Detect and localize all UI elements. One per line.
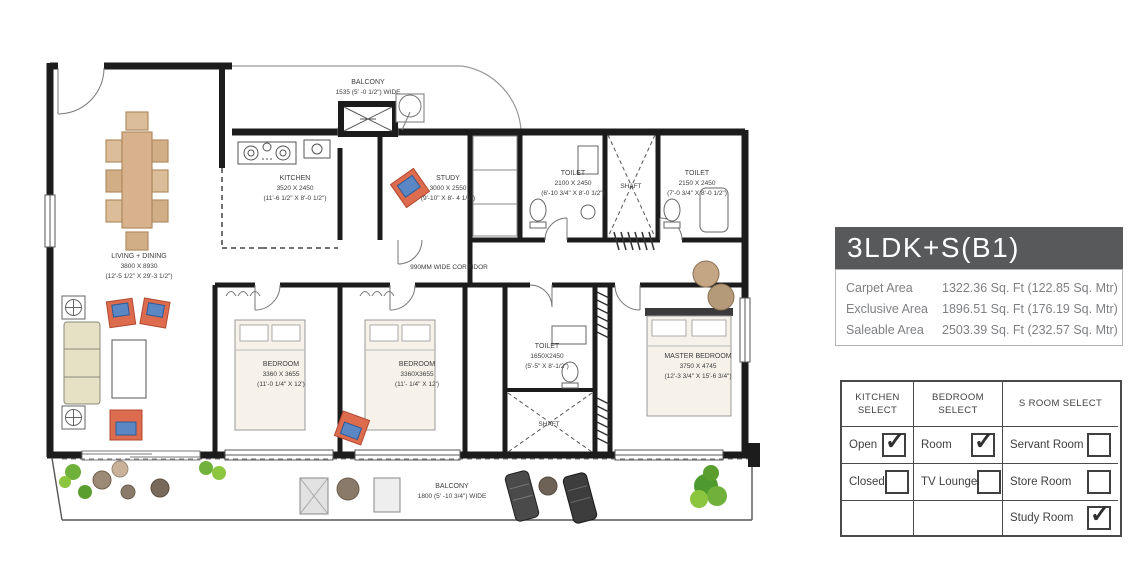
kitchen-name: KITCHEN (280, 175, 311, 182)
duct-hatching (597, 232, 654, 444)
top-balcony-box (341, 94, 424, 134)
dining-table (106, 112, 168, 250)
bedroom1-name: BEDROOM (263, 361, 299, 368)
toilet3-imperial: (5'-5" X 8'-1/2") (525, 363, 569, 370)
bedroom1-dims: 3360 X 3655 (263, 371, 300, 378)
wall-stub (748, 443, 760, 467)
toilet2-dims: 2150 X 2450 (679, 180, 716, 187)
kitchen-closed-cell: Closed (842, 464, 914, 501)
living-name: LIVING + DINING (111, 253, 166, 260)
exclusive-area-value: 1896.51 Sq. Ft (176.19 Sq. Mtr) (942, 302, 1118, 316)
master-dims: 3750 X 4745 (680, 363, 717, 370)
carpet-area-label: Carpet Area (846, 278, 942, 299)
bedroom-tvlounge-label: TV Lounge (921, 476, 977, 488)
bedroom-room-checkbox[interactable] (971, 433, 995, 457)
sroom-store-checkbox[interactable] (1087, 470, 1111, 494)
sroom-select-header: S ROOM SELECT (1003, 382, 1118, 427)
corridor-label: 990MM WIDE CORRIDOR (410, 264, 488, 271)
kitchen-closed-checkbox[interactable] (885, 470, 909, 494)
sroom-store-label: Store Room (1010, 476, 1071, 488)
shaft-mid-label: SHAFT (538, 421, 559, 428)
shaft-top-label: SHAFT (620, 183, 641, 190)
toilet1-imperial: (6'-10 3/4" X 8'-0 1/2") (541, 190, 604, 197)
kitchen-sink (304, 140, 330, 158)
bedroom2-name: BEDROOM (399, 361, 435, 368)
balcony-bottom-name: BALCONY (435, 483, 469, 490)
balcony-top-name: BALCONY (351, 79, 385, 86)
study-name: STUDY (436, 175, 460, 182)
saleable-area-row: Saleable Area2503.39 Sq. Ft (232.57 Sq. … (846, 320, 1122, 341)
carpet-area-row: Carpet Area1322.36 Sq. Ft (122.85 Sq. Mt… (846, 278, 1122, 299)
bedroom2-imperial: (11'- 1/4" X 12') (395, 381, 439, 388)
toilet3-name: TOILET (535, 343, 560, 350)
bedroom1-imperial: (11'-0 1/4" X 12') (257, 381, 305, 388)
study-dims: 3000 X 2550 (430, 185, 467, 192)
saleable-area-label: Saleable Area (846, 320, 942, 341)
sroom-study-cell: Study Room (1003, 501, 1118, 535)
toilet3-dims: 1650X2450 (530, 353, 564, 360)
exclusive-area-label: Exclusive Area (846, 299, 942, 320)
saleable-area-value: 2503.39 Sq. Ft (232.57 Sq. Mtr) (942, 323, 1118, 337)
toilet1-name: TOILET (561, 170, 586, 177)
bedroom-select-header: BEDROOM SELECT (914, 382, 1003, 427)
study-imperial: (9'-10" X 8'- 4 1/2") (421, 195, 475, 202)
bedroom-tvlounge-cell: TV Lounge (914, 464, 1003, 501)
living-dims: 3800 X 8930 (121, 263, 158, 270)
sroom-study-label: Study Room (1010, 512, 1073, 524)
options-table: KITCHEN SELECT BEDROOM SELECT S ROOM SEL… (840, 380, 1122, 537)
carpet-area-value: 1322.36 Sq. Ft (122.85 Sq. Mtr) (942, 281, 1118, 295)
sroom-store-cell: Store Room (1003, 464, 1118, 501)
kitchen-open-cell: Open (842, 427, 914, 464)
bedroom-room-cell: Room (914, 427, 1003, 464)
toilet2-name: TOILET (685, 170, 710, 177)
stove (238, 142, 296, 164)
balcony-bottom-dims: 1800 (5' -10 3/4") WIDE (418, 493, 487, 500)
kitchen-open-label: Open (849, 439, 877, 451)
bedroom2-dims: 3360X3655 (400, 371, 434, 378)
toilet1-dims: 2100 X 2450 (555, 180, 592, 187)
balcony-top-dims: 1535 (5' -0 1/2") WIDE (336, 89, 402, 96)
sroom-study-checkbox[interactable] (1087, 506, 1111, 530)
toilet1-fixtures (530, 146, 598, 228)
kitchen-dims: 3520 X 2450 (277, 185, 314, 192)
sroom-servant-cell: Servant Room (1003, 427, 1118, 464)
kitchen-select-header: KITCHEN SELECT (842, 382, 914, 427)
living-imperial: (12'-5 1/2" X 29'-3 1/2") (105, 273, 172, 280)
exclusive-area-row: Exclusive Area1896.51 Sq. Ft (176.19 Sq.… (846, 299, 1122, 320)
master-bed (645, 308, 733, 416)
empty-cell (842, 501, 914, 535)
sofa-set (62, 296, 170, 440)
cupboards (473, 136, 517, 236)
bedroom-room-label: Room (921, 439, 952, 451)
kitchen-imperial: (11'-6 1/2" X 8'-0 1/2") (264, 195, 327, 202)
empty-cell (914, 501, 1003, 535)
kitchen-open-checkbox[interactable] (882, 433, 906, 457)
sroom-servant-label: Servant Room (1010, 439, 1084, 451)
floor-plan: BALCONY 1535 (5' -0 1/2") WIDE KITCHEN 3… (0, 0, 830, 569)
plan-title: 3LDK+S(B1) (835, 227, 1123, 269)
sroom-servant-checkbox[interactable] (1087, 433, 1111, 457)
kitchen-closed-label: Closed (849, 476, 885, 488)
bedroom-tvlounge-checkbox[interactable] (977, 470, 1001, 494)
area-summary: Carpet Area1322.36 Sq. Ft (122.85 Sq. Mt… (835, 269, 1123, 346)
toilet2-imperial: (7'-0 3/4" X 8'-0 1/2") (667, 190, 727, 197)
master-imperial: (12'-3 3/4" X 15'-6 3/4") (664, 373, 731, 380)
master-name: MASTER BEDROOM (664, 353, 731, 360)
